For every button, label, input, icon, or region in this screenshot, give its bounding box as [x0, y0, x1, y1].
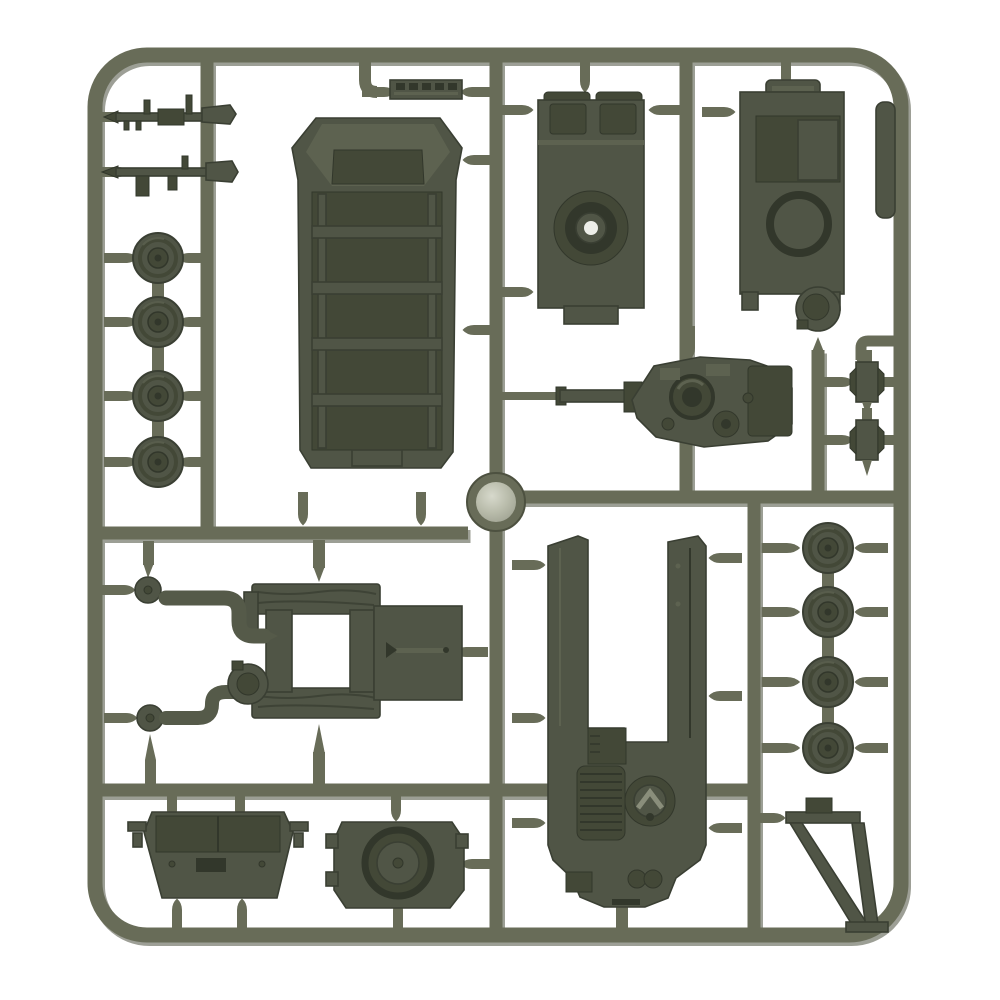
part-road-wheel	[133, 297, 183, 347]
part-road-wheel	[803, 587, 853, 637]
part-round-turret-top	[326, 822, 468, 908]
part-road-wheel	[133, 437, 183, 487]
part-mounting-tab	[876, 102, 895, 218]
sprue-photo: Olive drab injection-molded plastic spru…	[0, 0, 1000, 1000]
part-commander-cupola	[796, 287, 840, 331]
part-track-section	[390, 80, 462, 99]
part-apc-hull-top	[292, 118, 462, 468]
injection-gate-disc	[467, 473, 525, 531]
part-hull-deck-turret-ring	[538, 92, 644, 324]
part-hatch-door	[374, 606, 462, 700]
part-hub-disc-1	[135, 577, 161, 603]
part-road-wheel	[803, 523, 853, 573]
part-road-wheel	[803, 723, 853, 773]
part-road-wheel	[133, 371, 183, 421]
part-hull-deck-hatch	[740, 80, 844, 310]
part-road-wheel	[803, 657, 853, 707]
part-road-wheel	[133, 233, 183, 283]
photo-page: Olive drab injection-molded plastic spru…	[0, 0, 1000, 1000]
